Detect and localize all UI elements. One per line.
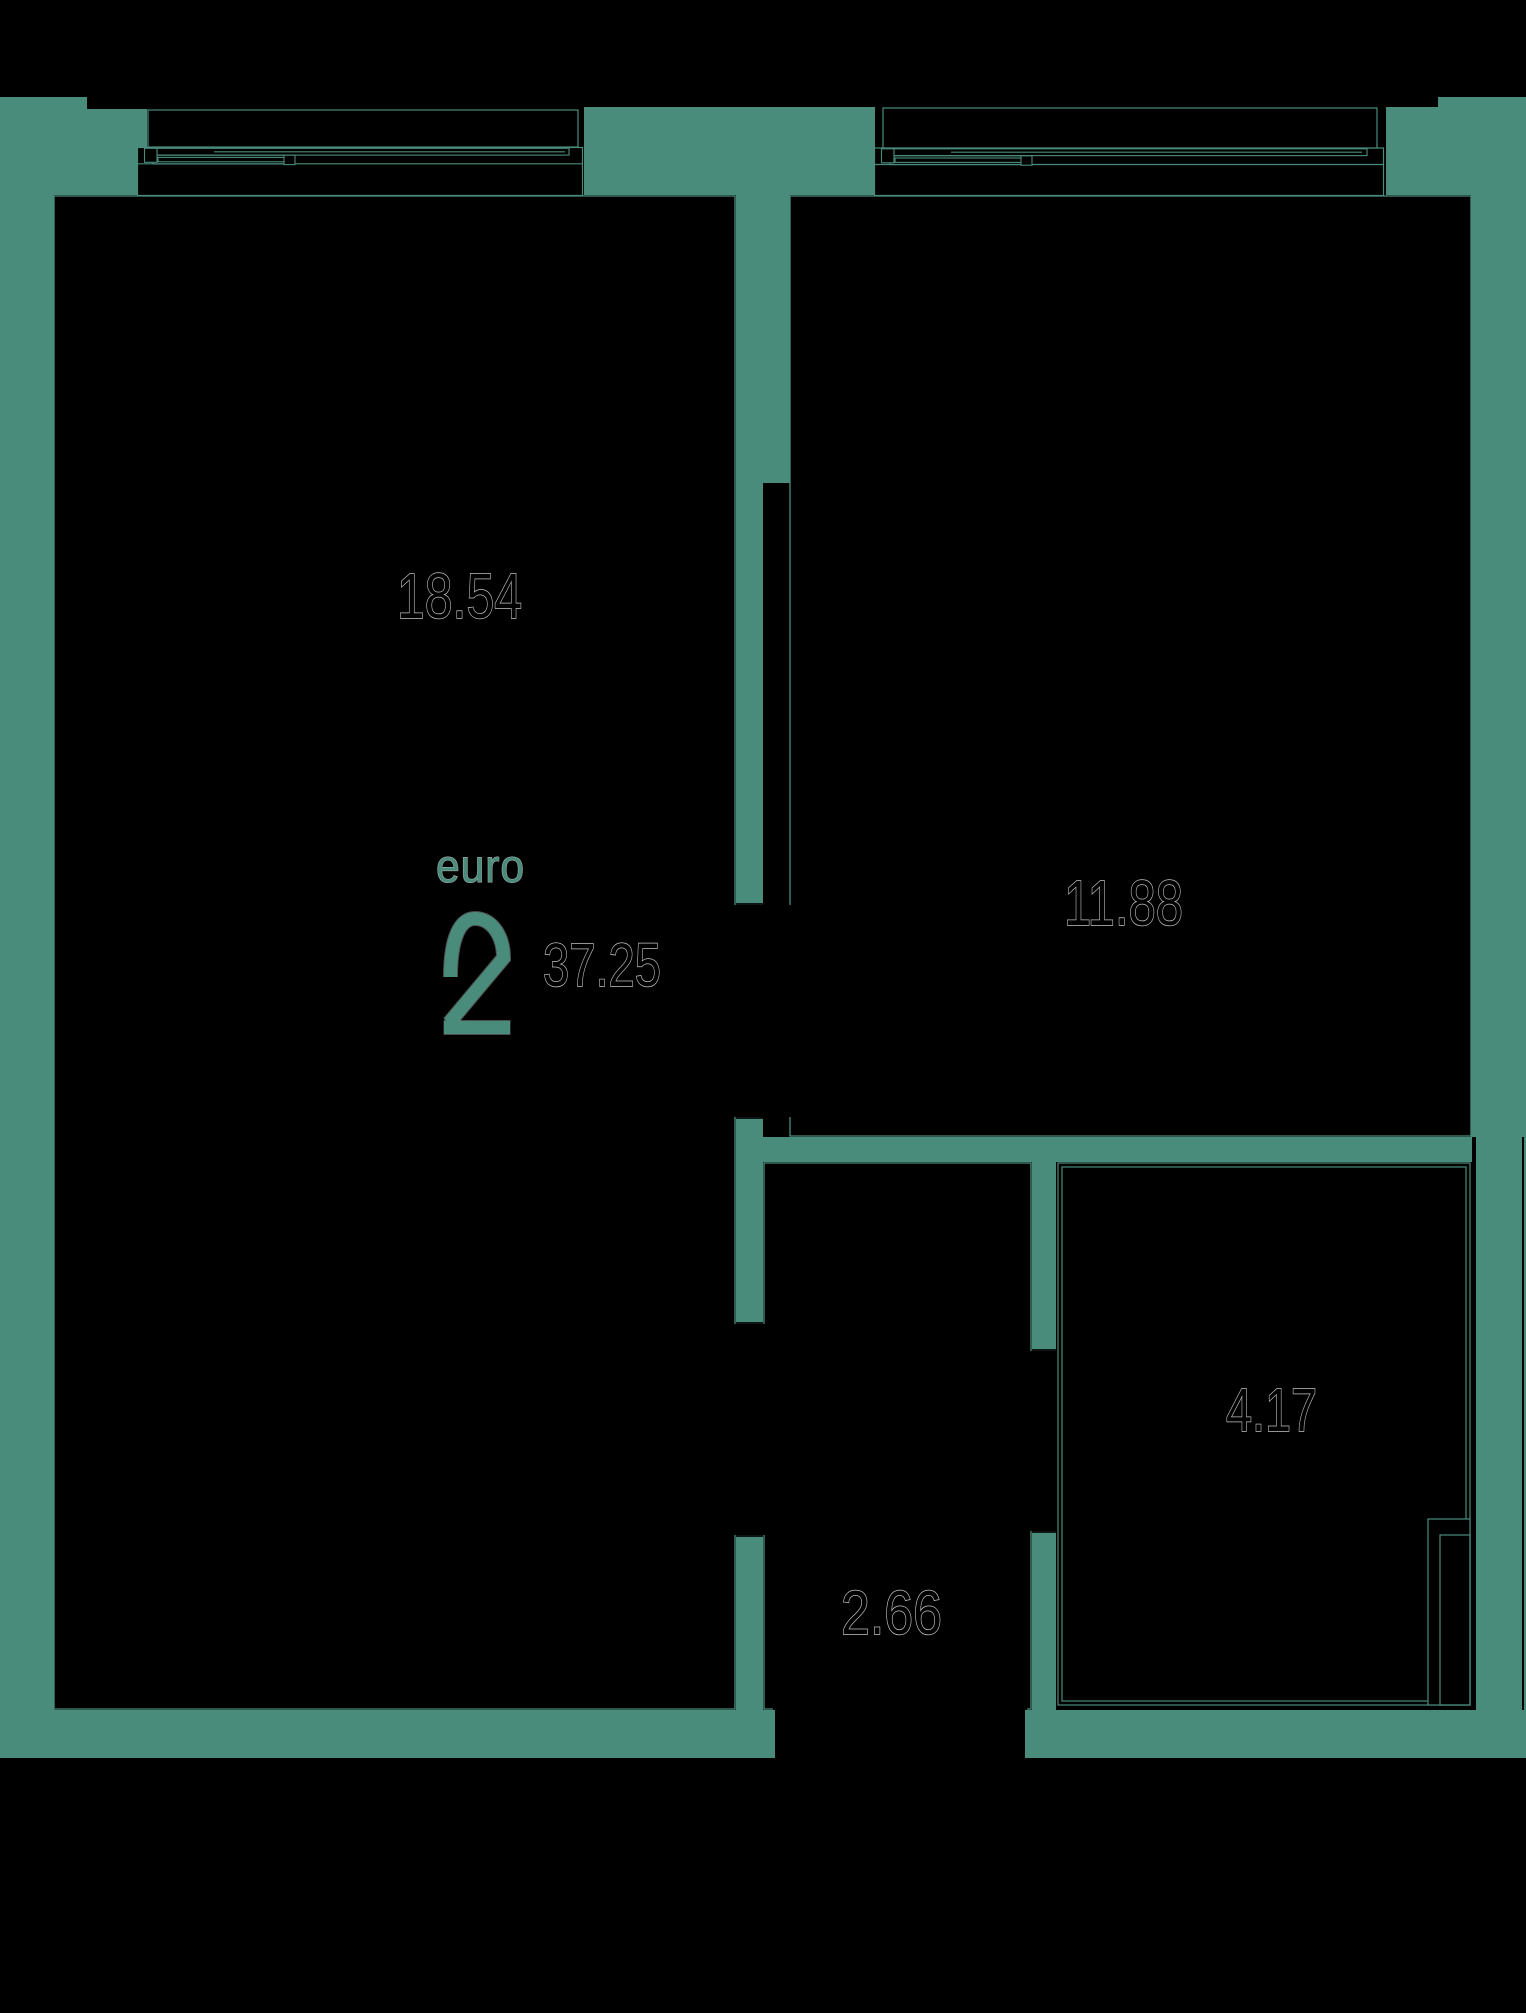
svg-text:11.88: 11.88 bbox=[1064, 867, 1183, 939]
svg-text:euro: euro bbox=[436, 840, 525, 892]
svg-text:37.25: 37.25 bbox=[543, 931, 661, 1000]
svg-text:4.17: 4.17 bbox=[1226, 1376, 1317, 1444]
svg-text:2.66: 2.66 bbox=[841, 1579, 942, 1648]
svg-text:18.54: 18.54 bbox=[397, 560, 522, 632]
